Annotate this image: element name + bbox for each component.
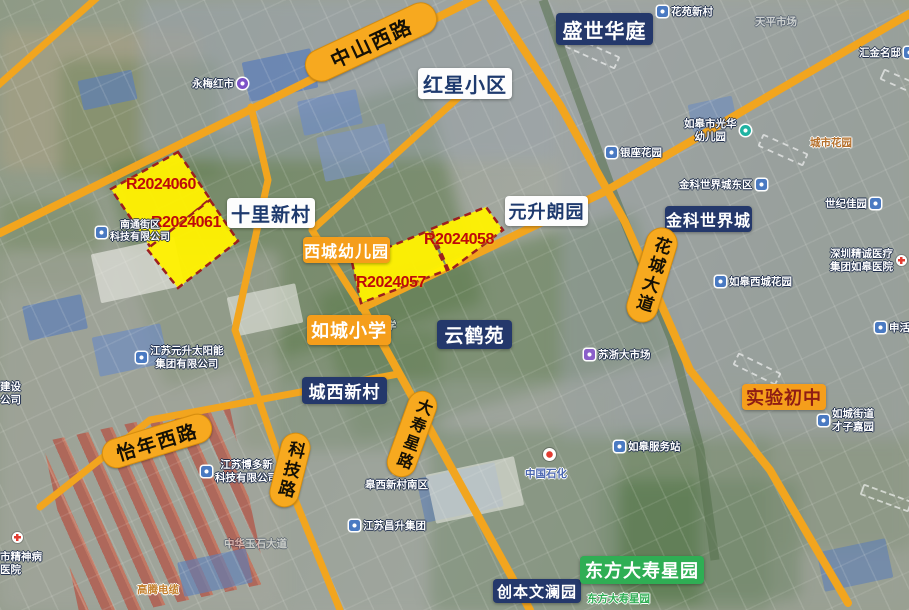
road-corner-northwest (0, 0, 100, 88)
poi-text: 皋西新村南区 (365, 477, 428, 492)
label-chengxi-xincun: 城西新村 (302, 377, 387, 404)
poi-yongmei-market: 永梅红市 (192, 76, 248, 91)
bus-station-icon (614, 441, 625, 452)
poi-text-line2: 集团如皋医院 (830, 261, 893, 274)
poi-caizi-jiayuan: 如城街道 才子嘉园 (818, 408, 874, 433)
poi-jianshe-company: 建设 公司 (0, 381, 21, 406)
factory-icon (201, 466, 212, 477)
label-rucheng-primary-school: 如城小学 (307, 315, 391, 345)
poi-text-line1: 江苏博多新 (215, 459, 278, 472)
school-icon (740, 125, 751, 136)
poi-rugao-service-station: 如皋服务站 (614, 439, 681, 454)
poi-huijin-mingdi: 汇金名邸 (859, 45, 909, 60)
poi-zhonghua-road: 中华玉石大道 (224, 536, 287, 551)
satellite-map-canvas[interactable]: R2024060 R2024061 R2024057 R2024058 永梅红市… (0, 0, 909, 610)
poi-suzhe-market: 苏浙大市场 (584, 347, 651, 362)
poi-text: 苏浙大市场 (598, 347, 651, 362)
poi-text-line1: 建设 (0, 381, 21, 394)
poi-shenzhen-hospital: 深圳精诚医疗 集团如皋医院 (830, 248, 907, 273)
poi-shenhuo: 申活 (875, 320, 909, 335)
poi-yuansheng-solar: 江苏元升太阳能 集团有限公司 (136, 345, 224, 370)
canal (543, 0, 715, 560)
parcel-label-R2024060: R2024060 (126, 176, 196, 194)
road-keji (235, 107, 340, 610)
poi-sinopec: 中国石化 (525, 466, 567, 481)
poi-text: 中国石化 (525, 466, 567, 481)
poi-gaoxi-xincun: 皋西新村南区 (365, 477, 428, 492)
poi-text-line1: 市精神病 (0, 551, 42, 564)
poi-text-line1: 深圳精诚医疗 (830, 248, 893, 261)
factory-icon (136, 352, 147, 363)
building-icon (870, 198, 881, 209)
poi-text: 永梅红市 (192, 76, 234, 91)
building-icon (715, 276, 726, 287)
poi-text-line1: 如城街道 (832, 408, 874, 421)
poi-yinzuo-garden: 银座花园 (606, 145, 662, 160)
poi-text: 江苏昌升集团 (363, 518, 426, 533)
poi-tianping-market: 天平市场 (755, 14, 797, 29)
poi-text: 天平市场 (755, 14, 797, 29)
poi-chengshi-garden: 城市花园 (810, 135, 852, 150)
road-huacheng-avenue (488, 0, 848, 603)
label-hongxing-xiaoqu: 红星小区 (418, 68, 512, 99)
hospital-cross-icon (896, 255, 907, 266)
poi-text: 东方大寿星园 (587, 591, 650, 606)
poi-text: 银座花园 (620, 145, 662, 160)
label-jinke-world-city: 金科世界城 (665, 206, 752, 232)
poi-text-line2: 才子嘉园 (832, 421, 874, 434)
poi-nantong-tech: 南通街区 科技有限公司 (96, 220, 170, 244)
label-shili-xincun: 十里新村 (227, 198, 315, 228)
poi-text: 中华玉石大道 (224, 536, 287, 551)
factory-icon (96, 227, 107, 238)
poi-text: 如皋服务站 (628, 439, 681, 454)
poi-text-line1: 如皋市光华 (684, 118, 737, 131)
building-icon (657, 6, 668, 17)
label-yunhe-yuan: 云鹤苑 (437, 320, 512, 349)
poi-psychiatric-hospital: 市精神病 医院 (0, 551, 42, 576)
label-dongfang-dashouxing-yuan: 东方大寿星园 (580, 556, 704, 584)
parcel-label-R2024058: R2024058 (424, 231, 494, 249)
poi-text-line2: 科技有限公司 (110, 232, 170, 244)
poi-gaoteng-cable: 高腾电缆 (137, 582, 179, 597)
poi-text-line1: 南通街区 (110, 220, 170, 232)
building-icon (904, 47, 909, 58)
building-icon (606, 147, 617, 158)
poi-dongfang-small: 东方大寿星园 (587, 591, 650, 606)
poi-text: 世纪佳园 (825, 196, 867, 211)
poi-guanghua-kindergarten: 如皋市光华 幼儿园 (684, 118, 751, 143)
poi-text: 汇金名邸 (859, 45, 901, 60)
poi-xicheng-garden: 如皋西城花园 (715, 274, 792, 289)
poi-text-line2: 集团有限公司 (150, 358, 224, 371)
poi-text-line1: 江苏元升太阳能 (150, 345, 224, 358)
label-chuangben-wenlanyuan: 创本文澜园 (493, 579, 581, 603)
building-icon (818, 415, 829, 426)
poi-text: 申活 (889, 320, 909, 335)
map-pin-icon (237, 78, 248, 89)
poi-text: 城市花园 (810, 135, 852, 150)
label-yuansheng-langyuan: 元升朗园 (505, 196, 588, 226)
label-xicheng-kindergarten: 西城幼儿园 (303, 237, 390, 263)
poi-shiji-jiayuan: 世纪佳园 (825, 196, 881, 211)
label-shengshi-huating: 盛世华庭 (556, 13, 653, 45)
road-northeast-diagonal (362, 14, 909, 308)
factory-icon (349, 520, 360, 531)
poi-boduo-tech: 江苏博多新 科技有限公司 (201, 459, 278, 484)
poi-text: 高腾电缆 (137, 582, 179, 597)
building-icon (875, 322, 886, 333)
hospital-cross-icon (12, 532, 23, 543)
building-icon (756, 179, 767, 190)
poi-text-line2: 公司 (0, 394, 21, 407)
market-icon (584, 349, 595, 360)
parcel-label-R2024057: R2024057 (356, 274, 426, 292)
poi-text: 金科世界城东区 (679, 177, 753, 192)
poi-text-line2: 幼儿园 (684, 131, 737, 144)
gas-station-icon (543, 448, 556, 461)
label-experimental-middle-school: 实验初中 (742, 384, 826, 410)
poi-text-line2: 科技有限公司 (215, 472, 278, 485)
poi-huayuan-xincun: 花苑新村 (657, 4, 713, 19)
poi-changsheng-group: 江苏昌升集团 (349, 518, 426, 533)
poi-text: 如皋西城花园 (729, 274, 792, 289)
poi-text-line2: 医院 (0, 564, 42, 577)
poi-text: 花苑新村 (671, 4, 713, 19)
poi-jinke-east-district: 金科世界城东区 (679, 177, 767, 192)
